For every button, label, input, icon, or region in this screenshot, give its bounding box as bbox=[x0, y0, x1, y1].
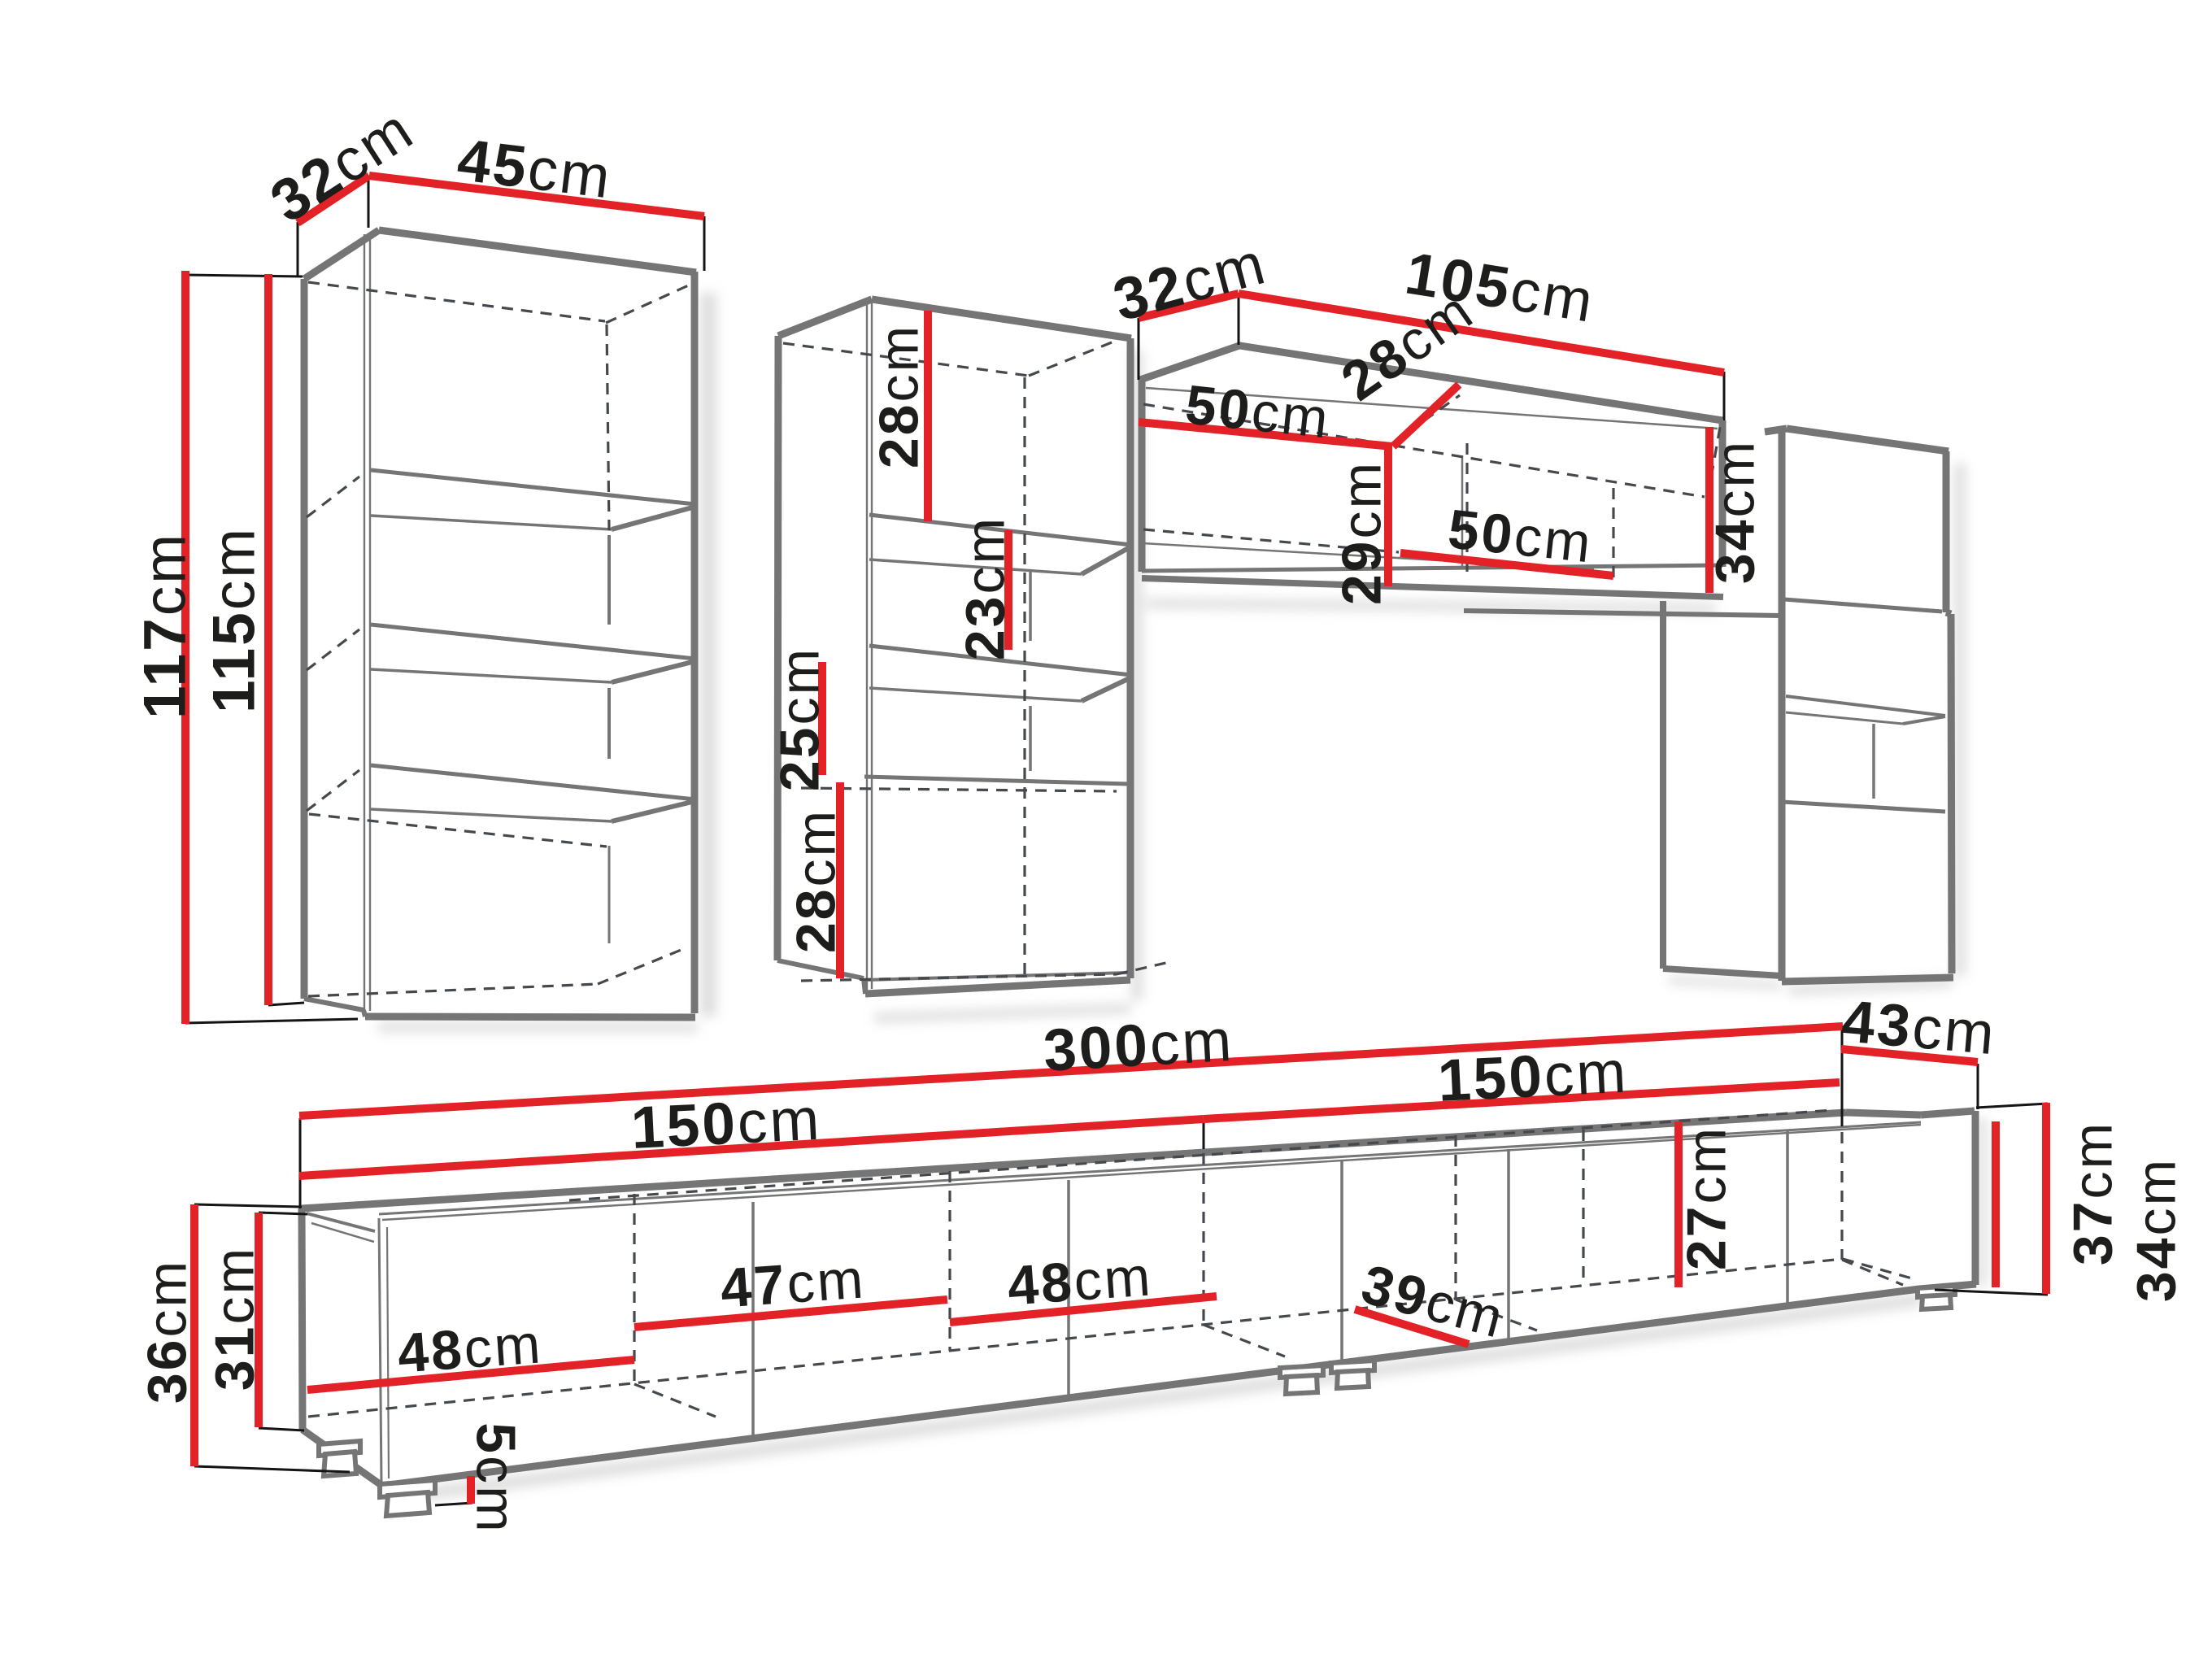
svg-text:27cm: 27cm bbox=[1675, 1126, 1737, 1270]
svg-text:23cm: 23cm bbox=[954, 516, 1016, 660]
svg-text:28cm: 28cm bbox=[868, 324, 930, 468]
svg-text:300cm: 300cm bbox=[1042, 1008, 1235, 1084]
svg-text:34cm: 34cm bbox=[1704, 439, 1766, 584]
svg-text:150cm: 150cm bbox=[629, 1086, 823, 1161]
svg-text:48cm: 48cm bbox=[396, 1313, 545, 1384]
svg-text:47cm: 47cm bbox=[719, 1248, 868, 1319]
svg-text:28cm: 28cm bbox=[785, 808, 847, 953]
svg-text:43cm: 43cm bbox=[1839, 988, 1999, 1067]
svg-text:5cm: 5cm bbox=[465, 1422, 527, 1534]
svg-text:31cm: 31cm bbox=[203, 1246, 265, 1391]
svg-text:25cm: 25cm bbox=[769, 647, 830, 791]
svg-text:29cm: 29cm bbox=[1330, 460, 1392, 605]
svg-text:37cm: 37cm bbox=[2062, 1121, 2123, 1265]
svg-text:150cm: 150cm bbox=[1436, 1039, 1630, 1114]
svg-text:36cm: 36cm bbox=[136, 1259, 198, 1404]
svg-text:34cm: 34cm bbox=[2125, 1157, 2187, 1302]
svg-text:117cm: 117cm bbox=[132, 532, 198, 719]
svg-text:48cm: 48cm bbox=[1006, 1245, 1155, 1317]
svg-text:115cm: 115cm bbox=[201, 526, 267, 713]
